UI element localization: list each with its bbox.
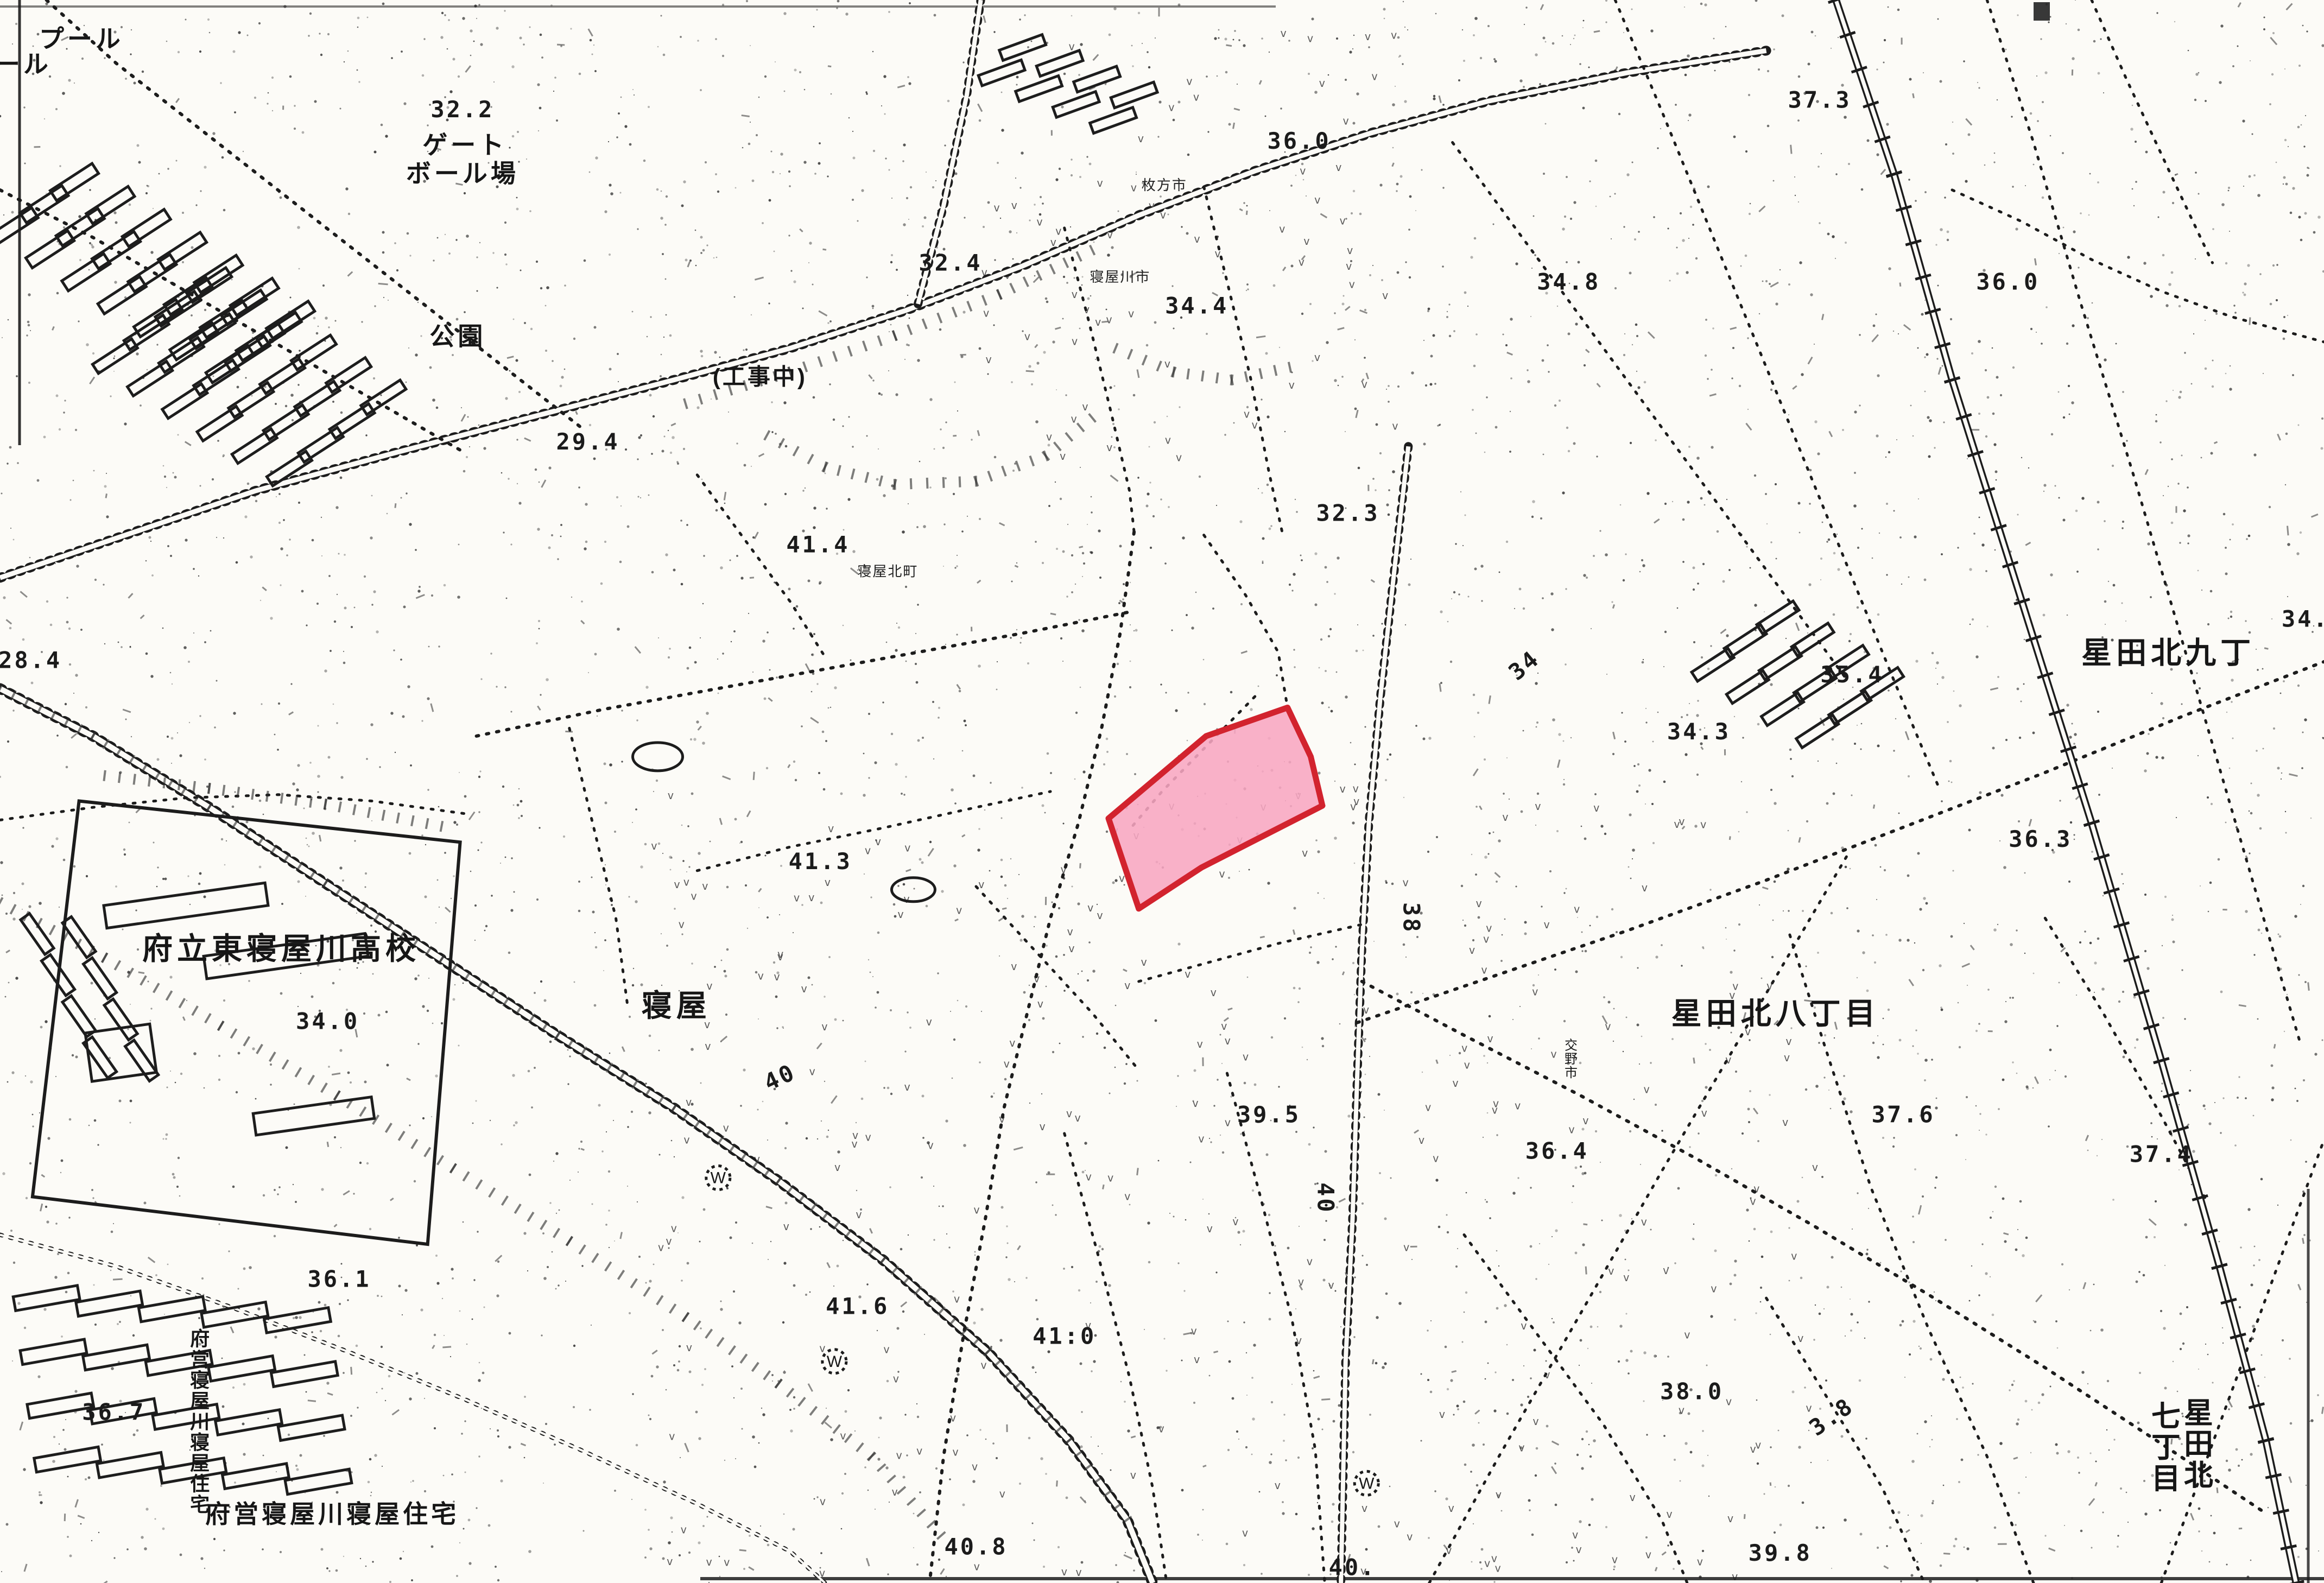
svg-text:v: v [1328,1278,1334,1291]
svg-text:v: v [1128,307,1135,320]
well-glyph: W [711,1169,726,1187]
svg-text:v: v [1543,918,1550,931]
svg-text:v: v [666,1234,672,1248]
svg-text:v: v [1487,1032,1493,1045]
spot-elevation: 41.6 [826,1293,889,1319]
spot-elevation: 40. [1329,1554,1377,1580]
spot-elevation: 34.0 [296,1008,359,1034]
svg-text:v: v [999,1487,1005,1500]
svg-text:v: v [1361,377,1367,390]
svg-text:v: v [1176,451,1182,464]
spot-elevation: 41:0 [1033,1323,1096,1350]
svg-text:v: v [1298,1275,1305,1288]
svg-text:v: v [670,1222,677,1235]
svg-text:v: v [1461,1042,1468,1055]
well-glyph: W [827,1353,843,1371]
svg-text:v: v [1782,1116,1789,1129]
fuei-jutaku-vertical-label: 府営寝屋川寝屋住宅 [190,1328,210,1516]
hoshidakita-7-col-left: 七丁目 [2151,1400,2181,1495]
svg-text:v: v [1130,181,1137,194]
svg-text:v: v [1243,1050,1249,1063]
svg-text:v: v [724,1556,730,1569]
svg-text:v: v [683,1134,690,1147]
svg-text:v: v [1727,1512,1734,1525]
spot-elevation: 36.3 [2009,826,2072,852]
svg-text:v: v [1726,1395,1732,1408]
svg-text:v: v [1575,1543,1582,1556]
svg-text:v: v [678,917,685,930]
svg-text:v: v [1071,334,1078,347]
svg-text:v: v [1198,1132,1205,1145]
svg-text:v: v [1314,193,1321,206]
svg-text:v: v [1593,801,1600,814]
svg-text:v: v [1755,1439,1762,1452]
svg-text:v: v [1448,1502,1454,1515]
svg-text:v: v [1343,115,1349,128]
svg-text:v: v [686,1096,692,1109]
svg-text:v: v [1605,1020,1611,1033]
svg-text:v: v [1750,1194,1756,1207]
svg-text:v: v [1124,979,1131,992]
svg-text:v: v [1407,1530,1413,1543]
svg-text:v: v [1394,1517,1400,1530]
svg-text:v: v [1206,1222,1213,1235]
svg-text:v: v [1141,955,1147,968]
spot-elevation: 34. [2282,606,2324,632]
svg-text:v: v [1335,161,1342,174]
svg-text:v: v [801,982,807,995]
svg-text:v: v [667,789,674,802]
svg-text:v: v [1232,1215,1239,1228]
svg-text:v: v [864,844,871,857]
svg-text:v: v [1493,1097,1499,1110]
svg-text:v: v [952,1445,959,1458]
spot-elevation: 32.3 [1316,499,1379,526]
svg-text:v: v [1521,1319,1527,1332]
svg-text:v: v [705,1040,711,1053]
svg-text:v: v [1164,433,1171,446]
svg-text:v: v [1319,77,1325,90]
spot-elevation: 36.1 [307,1266,371,1293]
svg-text:v: v [983,306,990,319]
school-campus-outline [33,801,460,1245]
svg-text:v: v [793,891,800,904]
svg-text:v: v [1242,1527,1249,1540]
spot-elevation: 32.4 [919,250,982,276]
svg-text:v: v [1611,1553,1618,1566]
svg-text:v: v [1641,1215,1647,1229]
svg-text:v: v [1085,1170,1092,1183]
neya-label: 寝屋 [642,989,711,1023]
svg-text:v: v [1280,27,1287,40]
pool-label: プール [39,24,124,53]
under-construction-label: (工事中) [713,364,807,390]
svg-text:v: v [706,1555,712,1568]
spot-elevation: 36.4 [1525,1138,1589,1164]
svg-text:v: v [1371,69,1378,83]
svg-text:v: v [651,839,657,852]
svg-text:v: v [1629,1491,1636,1504]
svg-text:v: v [1011,960,1017,973]
svg-text:v: v [1137,132,1144,145]
svg-text:v: v [1288,378,1295,391]
svg-text:v: v [903,892,910,906]
svg-text:v: v [1806,1401,1812,1414]
hoshidakita-7-col-right: 星田北 [2184,1397,2213,1491]
svg-text:v: v [1403,1240,1410,1253]
fuei-jutaku-horizontal-label: 府営寝屋川寝屋住宅 [205,1500,459,1528]
svg-text:v: v [686,1341,692,1354]
svg-text:v: v [1348,278,1355,291]
svg-text:v: v [1185,967,1191,980]
svg-text:v: v [1130,1468,1136,1481]
pond [891,878,935,902]
svg-text:v: v [1095,315,1101,328]
svg-text:v: v [1352,782,1359,795]
svg-text:v: v [892,1372,899,1385]
svg-text:v: v [1364,30,1371,43]
svg-text:v: v [1574,903,1580,916]
spot-elevation: 41.3 [789,848,852,875]
svg-text:v: v [1251,418,1258,431]
svg-text:v: v [985,353,992,366]
well-glyph: W [1359,1474,1375,1492]
svg-text:v: v [1696,1555,1703,1568]
svg-text:v: v [1666,1508,1673,1521]
svg-text:v: v [674,878,680,891]
svg-text:v: v [956,904,962,917]
svg-text:v: v [1382,289,1389,302]
svg-text:v: v [1812,1161,1818,1174]
svg-text:v: v [1678,1404,1685,1417]
svg-text:v: v [1106,441,1113,454]
svg-text:v: v [783,1220,789,1233]
svg-text:v: v [1533,1415,1539,1428]
svg-text:v: v [1194,232,1200,245]
svg-text:v: v [1055,225,1062,238]
svg-text:v: v [1314,351,1320,364]
svg-text:v: v [1391,28,1397,41]
svg-text:v: v [1469,944,1476,957]
highlight-layer [1109,708,1322,909]
svg-text:v: v [1303,235,1310,248]
spot-elevation: 38.0 [1660,1378,1724,1405]
svg-text:v: v [1502,811,1509,824]
svg-text:v: v [904,1080,910,1093]
svg-text:v: v [1306,1255,1313,1268]
svg-text:v: v [1568,1123,1575,1136]
svg-text:v: v [1418,1134,1424,1147]
neyagawa-city-label: 寝屋川市 [1090,269,1150,285]
spot-elevation: 36.0 [1976,269,2040,295]
svg-text:v: v [1701,1106,1707,1119]
svg-text:v: v [1346,259,1352,273]
svg-text:v: v [828,822,834,835]
svg-text:v: v [1036,216,1043,229]
park-label: 公園 [429,322,486,351]
svg-text:v: v [978,878,985,891]
svg-text:v: v [1003,1057,1010,1070]
svg-text:v: v [1224,1116,1231,1129]
svg-text:v: v [896,1449,902,1462]
svg-text:v: v [904,841,911,854]
contour-value: 38 [1398,902,1425,934]
spot-elevation: 39.5 [1237,1101,1301,1128]
spot-elevation: 40.8 [944,1534,1008,1560]
svg-text:v: v [1210,986,1217,999]
svg-text:v: v [1684,1328,1690,1341]
svg-text:v: v [973,1203,980,1216]
svg-text:v: v [1071,288,1078,301]
svg-text:v: v [1481,963,1487,976]
svg-text:v: v [883,1343,890,1356]
svg-text:v: v [1300,164,1306,177]
svg-text:v: v [1535,800,1541,813]
svg-text:v: v [972,1460,978,1473]
svg-text:v: v [1224,1034,1231,1047]
svg-text:v: v [1362,1502,1368,1515]
svg-text:v: v [1074,1111,1081,1124]
contour-value: 34 [1503,645,1544,686]
hoshidakita-9cho-label: 星田北九丁 [2081,636,2255,670]
svg-text:v: v [1339,214,1346,227]
contour-value: 40 [760,1059,800,1096]
svg-text:v: v [897,908,904,921]
svg-text:v: v [1046,430,1053,444]
svg-text:v: v [1068,942,1075,955]
neyakita-cho-label: 寝屋北町 [857,563,918,579]
svg-text:v: v [1643,1082,1650,1096]
svg-text:v: v [1011,199,1017,212]
scan-artifact [2034,2,2050,21]
katano-city-label: 交野市 [1565,1038,1578,1080]
svg-text:v: v [819,1495,826,1508]
svg-text:v: v [1194,1353,1200,1366]
map-canvas: vvvvvvvvvvvvvvvvvvvvvvvvvvvvvvvvvvvvvvvv… [0,0,2324,1583]
svg-text:v: v [1279,222,1286,235]
spot-elevation: 37.6 [1872,1101,1935,1128]
spot-elevation: 29.4 [556,428,620,455]
svg-text:v: v [1347,244,1353,257]
svg-text:v: v [1402,876,1409,889]
highlight-parcel [1109,708,1322,909]
svg-text:v: v [856,1208,862,1221]
svg-text:v: v [1302,846,1308,859]
svg-text:v: v [809,1065,815,1078]
svg-text:v: v [1087,901,1094,914]
svg-text:v: v [993,201,1000,214]
svg-text:v: v [1464,1058,1470,1071]
contour-value: 3.8 [1804,1392,1859,1441]
spot-elevation: 35.4 [1820,661,1884,688]
spot-elevation: 34.8 [1537,269,1600,295]
svg-text:v: v [1158,1422,1164,1435]
svg-text:v: v [1060,449,1066,463]
svg-text:v: v [1067,925,1073,938]
svg-text:v: v [1663,1264,1669,1277]
svg-text:v: v [1082,400,1088,413]
spot-elevation: 34.3 [1667,718,1731,745]
spot-elevation: 39.8 [1749,1540,1812,1566]
svg-text:v: v [680,1523,687,1536]
svg-text:v: v [1298,255,1305,268]
svg-text:v: v [819,1342,826,1355]
svg-text:v: v [1097,176,1103,189]
svg-text:v: v [1363,1003,1370,1016]
svg-text:v: v [1243,408,1250,421]
svg-text:v: v [667,1555,673,1568]
svg-text:v: v [1515,1099,1521,1112]
svg-text:v: v [1550,1048,1557,1061]
svg-text:v: v [757,969,764,982]
svg-text:v: v [1219,868,1225,881]
spot-elevation: 37.4 [2130,1141,2193,1167]
svg-text:v: v [1191,1325,1197,1338]
svg-text:v: v [1476,897,1482,910]
svg-text:v: v [1071,413,1077,426]
spot-elevation: 34.4 [1165,292,1229,319]
svg-text:v: v [1484,1557,1491,1570]
svg-text:v: v [980,1358,987,1371]
svg-text:v: v [875,835,881,848]
hoshidakita-8chome-label: 星田北八丁目 [1671,997,1880,1031]
svg-text:v: v [808,891,815,904]
svg-text:v: v [1307,32,1314,45]
svg-text:v: v [1009,1036,1016,1049]
svg-text:v: v [1495,1561,1501,1574]
pond [633,743,683,771]
svg-text:v: v [1608,1264,1614,1277]
svg-text:v: v [1107,1171,1114,1184]
pool-label-partial: ール [0,50,52,78]
svg-text:v: v [1392,419,1398,432]
hirakata-city-label: 枚方市 [1142,177,1187,193]
svg-text:v: v [1791,1249,1797,1262]
svg-text:v: v [1483,932,1490,945]
svg-text:v: v [927,1138,934,1151]
spot-elevation: 36.7 [82,1399,145,1426]
svg-text:v: v [1700,818,1707,831]
svg-text:v: v [1532,985,1538,998]
svg-text:v: v [1645,1548,1651,1561]
svg-text:v: v [1350,800,1357,813]
scanned-map-page: vvvvvvvvvvvvvvvvvvvvvvvvvvvvvvvvvvvvvvvv… [0,0,2324,1583]
gateball-label-line2: ボール場 [406,159,519,187]
svg-text:v: v [1785,1035,1792,1048]
svg-text:v: v [1061,1565,1067,1578]
svg-text:v: v [702,879,708,892]
svg-text:v: v [1679,815,1685,828]
svg-text:v: v [1066,1107,1072,1120]
svg-text:v: v [1196,1037,1203,1050]
svg-text:v: v [1221,1020,1227,1033]
spot-elevation: 41.4 [786,531,850,558]
svg-text:v: v [953,1292,960,1305]
svg-text:v: v [821,1020,828,1033]
svg-text:v: v [834,1161,841,1174]
svg-text:v: v [916,1445,923,1458]
svg-text:v: v [973,1560,980,1573]
svg-text:v: v [1164,357,1170,370]
contour-value: 40 [1312,1182,1339,1214]
svg-text:v: v [1797,1332,1804,1345]
svg-text:v: v [891,1485,898,1498]
svg-text:v: v [1186,75,1193,88]
svg-text:v: v [1439,1408,1445,1421]
svg-text:v: v [1641,881,1648,894]
svg-text:v: v [777,950,783,963]
svg-text:v: v [1168,100,1175,113]
svg-text:v: v [1711,1282,1717,1295]
svg-text:v: v [683,875,689,888]
svg-text:v: v [657,1241,664,1254]
svg-text:v: v [824,876,831,889]
svg-text:v: v [1037,997,1043,1010]
svg-text:v: v [1024,330,1030,343]
spot-elevation: 37.3 [1788,86,1851,113]
svg-text:v: v [1433,1151,1439,1164]
svg-text:v: v [1623,1271,1630,1284]
svg-text:v: v [926,1015,932,1028]
svg-text:v: v [1784,1051,1790,1064]
svg-text:v: v [1193,91,1199,104]
svg-text:v: v [1572,1528,1579,1541]
svg-text:v: v [1518,1441,1525,1454]
svg-text:v: v [1452,1077,1459,1090]
spot-elevation: 28.4 [0,647,62,674]
svg-text:v: v [1075,1566,1082,1579]
svg-text:v: v [1124,1190,1131,1203]
svg-text:v: v [774,970,780,983]
svg-text:v: v [723,1122,729,1135]
svg-text:v: v [1495,1488,1502,1501]
svg-text:v: v [1339,782,1346,795]
svg-text:v: v [1039,1120,1046,1133]
gateball-label-line1: ゲート [422,131,507,159]
svg-text:v: v [1106,313,1112,326]
spot-elevation: 32.2 [430,96,494,123]
svg-text:v: v [1192,1097,1199,1110]
svg-text:v: v [865,1131,871,1144]
svg-text:v: v [1097,909,1103,922]
svg-text:v: v [669,1429,675,1442]
svg-text:v: v [1732,1570,1738,1583]
svg-text:v: v [691,890,697,903]
svg-text:v: v [1582,1114,1589,1127]
highschool-label: 府立東寝屋川高校 [142,932,420,966]
svg-text:v: v [1425,1100,1432,1113]
svg-text:v: v [1274,1479,1281,1492]
spot-elevation: 36.0 [1268,128,1331,154]
svg-text:v: v [851,1137,858,1150]
